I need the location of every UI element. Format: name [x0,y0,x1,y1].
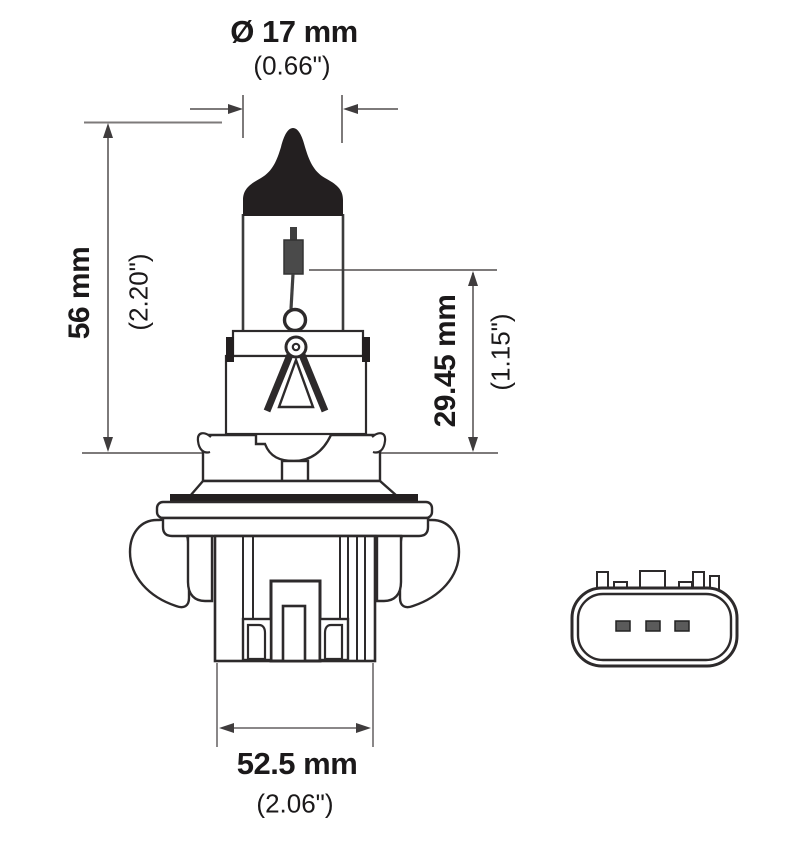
connector-pins [616,621,689,631]
seal-bead [285,310,306,331]
flange-pedestal [282,461,308,481]
dimension-bottom-imperial: (2.06") [256,789,333,820]
dimension-right-imperial: (1.15") [486,313,517,390]
flange-ear-right [372,433,385,452]
pin-3 [675,621,689,631]
clip-leg-left [188,536,212,601]
dimension-left-imperial: (2.20") [124,253,155,330]
bulb-black-tip [243,128,343,216]
dimension-top-metric: Ø 17 mm [230,14,357,50]
pin-1 [616,621,630,631]
dimension-left-metric: 56 mm [63,247,97,340]
pin-2 [646,621,660,631]
line-art [0,0,800,843]
filament [284,227,306,331]
base-body [215,536,375,661]
dimension-top-imperial: (0.66") [253,51,330,82]
base-pedestal-slot [283,606,305,661]
flange-ear-left [198,433,211,452]
flange-ring-lower [163,518,428,536]
diagram-canvas: Ø 17 mm (0.66") 56 mm (2.20") 29.45 mm (… [0,0,800,843]
collar-mark-right [362,337,370,362]
flange-ring [157,502,432,518]
collar-mark-left [226,337,234,362]
clip-leg-right [377,536,401,601]
dimension-right-metric: 29.45 mm [429,295,463,428]
bulb-side-view [130,128,459,661]
taper [190,481,397,496]
dimension-bottom-metric: 52.5 mm [237,746,358,782]
connector-face-view [572,571,737,666]
base-width-dimension [217,663,373,747]
